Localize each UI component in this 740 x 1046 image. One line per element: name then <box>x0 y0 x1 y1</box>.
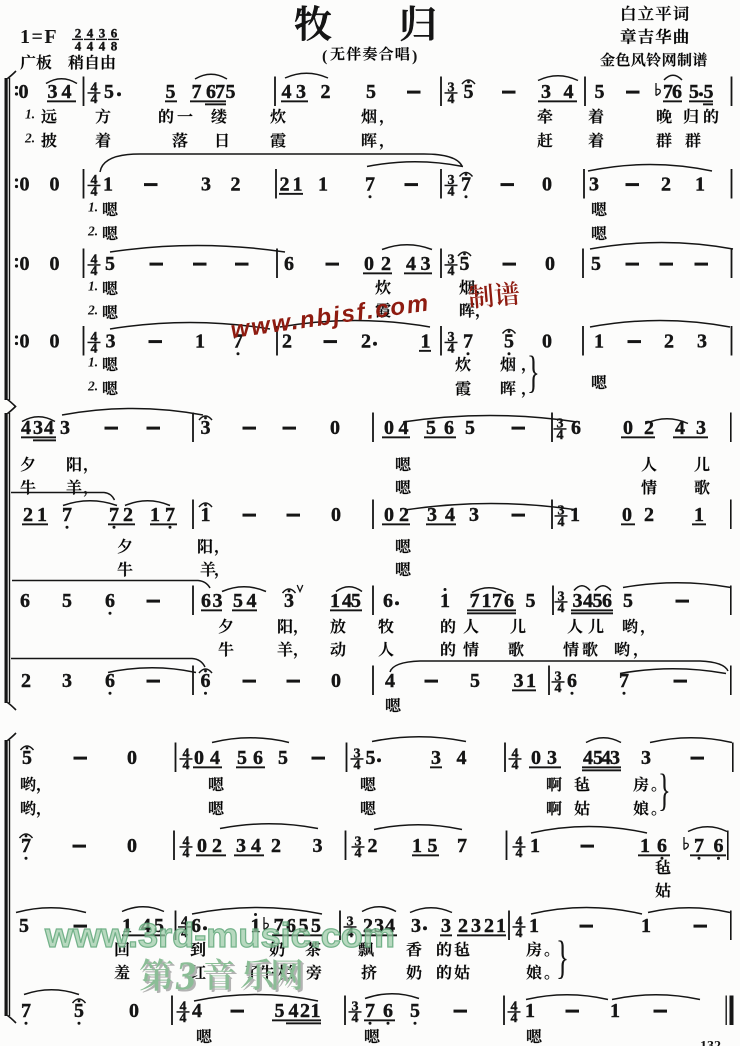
svg-text:}: } <box>556 932 569 983</box>
svg-text:1: 1 <box>201 504 211 526</box>
svg-text:7: 7 <box>365 174 375 196</box>
svg-text:1=F: 1=F <box>20 26 58 48</box>
svg-text:2: 2 <box>271 835 281 857</box>
svg-text:2: 2 <box>21 670 31 692</box>
svg-text:0: 0 <box>623 417 633 439</box>
svg-text:5: 5 <box>237 747 247 769</box>
svg-text:1.: 1. <box>25 107 35 122</box>
svg-text:0: 0 <box>384 417 394 439</box>
svg-text:3: 3 <box>589 174 599 196</box>
svg-text:4: 4 <box>516 846 523 861</box>
svg-text:4: 4 <box>555 681 562 696</box>
svg-text:3: 3 <box>573 590 583 612</box>
svg-text:4: 4 <box>91 92 98 107</box>
svg-text:4: 4 <box>583 747 593 769</box>
svg-text:5: 5 <box>366 81 376 103</box>
svg-text:3: 3 <box>175 953 196 998</box>
svg-text:7: 7 <box>165 504 175 526</box>
svg-text:1.: 1. <box>88 200 98 215</box>
svg-text:1: 1 <box>610 1000 620 1022</box>
svg-text:1: 1 <box>103 174 113 196</box>
svg-text:4: 4 <box>282 81 292 103</box>
svg-text:0: 0 <box>330 417 340 439</box>
svg-text:6: 6 <box>201 670 211 692</box>
svg-text:4: 4 <box>406 253 416 275</box>
svg-text:0: 0 <box>197 835 207 857</box>
svg-text:3: 3 <box>33 417 43 439</box>
svg-text:7: 7 <box>457 835 467 857</box>
svg-text:5: 5 <box>62 590 72 612</box>
svg-text:6: 6 <box>657 835 667 857</box>
svg-text:5: 5 <box>504 331 514 353</box>
svg-text:2: 2 <box>123 504 133 526</box>
svg-text:1: 1 <box>482 590 492 612</box>
svg-text:3: 3 <box>469 504 479 526</box>
svg-text:6: 6 <box>253 747 263 769</box>
svg-text:7: 7 <box>694 835 704 857</box>
svg-text:4: 4 <box>21 417 31 439</box>
svg-text:0: 0 <box>127 747 137 769</box>
svg-text:4: 4 <box>91 185 98 200</box>
svg-text:0: 0 <box>542 174 552 196</box>
svg-text:5: 5 <box>465 417 475 439</box>
svg-text:6: 6 <box>284 253 294 275</box>
svg-text:}: } <box>658 766 671 816</box>
svg-text:4: 4 <box>62 81 72 103</box>
svg-text:0: 0 <box>331 670 341 692</box>
svg-text:1: 1 <box>37 504 47 526</box>
svg-text:6: 6 <box>567 670 577 692</box>
svg-text:1.: 1. <box>88 279 98 294</box>
svg-text:2: 2 <box>644 504 654 526</box>
svg-text:0: 0 <box>19 81 29 103</box>
svg-text:5: 5 <box>105 253 115 275</box>
svg-text:3: 3 <box>284 590 294 612</box>
svg-text:2: 2 <box>399 504 409 526</box>
svg-text:5: 5 <box>426 417 436 439</box>
svg-text:4: 4 <box>385 670 395 692</box>
svg-text:3: 3 <box>48 81 58 103</box>
svg-text:4: 4 <box>448 92 455 107</box>
svg-text:4: 4 <box>448 185 455 200</box>
svg-text:1: 1 <box>594 331 604 353</box>
svg-text:7: 7 <box>62 504 72 526</box>
svg-text:3: 3 <box>471 915 481 937</box>
svg-text:0: 0 <box>20 253 30 275</box>
svg-text:1: 1 <box>440 590 450 612</box>
svg-text:www.3rd-music.com: www.3rd-music.com <box>44 917 395 955</box>
svg-text:2: 2 <box>23 504 33 526</box>
svg-text:3: 3 <box>441 915 451 937</box>
svg-text:4: 4 <box>251 835 261 857</box>
svg-text:4: 4 <box>192 1000 202 1022</box>
svg-text:5: 5 <box>526 590 536 612</box>
svg-text:6: 6 <box>714 835 724 857</box>
svg-text:0: 0 <box>364 253 374 275</box>
svg-text:1: 1 <box>695 174 705 196</box>
svg-text:3: 3 <box>431 747 441 769</box>
svg-text:1: 1 <box>694 504 704 526</box>
svg-text:0: 0 <box>331 504 341 526</box>
svg-text:1: 1 <box>530 835 540 857</box>
svg-text:6: 6 <box>571 417 581 439</box>
svg-text:1: 1 <box>570 504 580 526</box>
svg-text:5: 5 <box>623 590 633 612</box>
svg-text:1: 1 <box>526 670 536 692</box>
svg-text:0: 0 <box>384 504 394 526</box>
svg-text:2: 2 <box>300 1000 310 1022</box>
svg-text:1: 1 <box>293 174 303 196</box>
svg-text:0: 0 <box>542 331 552 353</box>
svg-text:1: 1 <box>529 915 539 937</box>
svg-text:3: 3 <box>106 331 116 353</box>
svg-text:7: 7 <box>461 174 471 196</box>
svg-text:4: 4 <box>564 81 574 103</box>
svg-text:5: 5 <box>233 590 243 612</box>
svg-text:4: 4 <box>180 1011 187 1026</box>
svg-text:3: 3 <box>296 81 306 103</box>
svg-text:4: 4 <box>511 1011 518 1026</box>
svg-text:4: 4 <box>558 515 565 530</box>
svg-text:3: 3 <box>201 417 211 439</box>
svg-text:2: 2 <box>321 81 331 103</box>
svg-text:5: 5 <box>19 915 29 937</box>
svg-text:132: 132 <box>700 1039 721 1046</box>
svg-text:5: 5 <box>275 1000 285 1022</box>
svg-text:1: 1 <box>311 1000 321 1022</box>
svg-text:4: 4 <box>399 417 409 439</box>
svg-text:5: 5 <box>470 670 480 692</box>
svg-text:4: 4 <box>99 39 106 54</box>
svg-text:5: 5 <box>351 590 361 612</box>
svg-text:1: 1 <box>641 915 651 937</box>
svg-text:1: 1 <box>421 331 431 353</box>
svg-text:5: 5 <box>595 81 605 103</box>
svg-text:3: 3 <box>213 590 223 612</box>
svg-text:4: 4 <box>448 342 455 357</box>
svg-text:0: 0 <box>194 747 204 769</box>
svg-text:0: 0 <box>545 253 555 275</box>
svg-text:4: 4 <box>75 39 82 54</box>
svg-text:4: 4 <box>183 846 190 861</box>
svg-text:0: 0 <box>20 331 30 353</box>
svg-text:4: 4 <box>91 264 98 279</box>
svg-text:4: 4 <box>352 1011 359 1026</box>
svg-text:8: 8 <box>111 39 118 54</box>
svg-text:2: 2 <box>368 835 378 857</box>
svg-text:5: 5 <box>460 253 470 275</box>
svg-text:2: 2 <box>484 915 494 937</box>
svg-text:1: 1 <box>640 835 650 857</box>
svg-text:0: 0 <box>50 253 60 275</box>
svg-text:1: 1 <box>318 174 328 196</box>
svg-text:7: 7 <box>109 504 119 526</box>
svg-text:5: 5 <box>104 81 114 103</box>
svg-text:5: 5 <box>226 81 236 103</box>
svg-text:5: 5 <box>464 81 474 103</box>
svg-text:0: 0 <box>531 747 541 769</box>
svg-text:5: 5 <box>410 1000 420 1022</box>
svg-text:2: 2 <box>661 174 671 196</box>
svg-text:4: 4 <box>445 504 455 526</box>
svg-text:2: 2 <box>458 915 468 937</box>
svg-text:5: 5 <box>166 81 176 103</box>
svg-text:6: 6 <box>602 590 612 612</box>
svg-text:3: 3 <box>541 81 551 103</box>
svg-text:7: 7 <box>215 81 225 103</box>
svg-text:0: 0 <box>622 504 632 526</box>
svg-text:2: 2 <box>361 331 371 353</box>
svg-text:4: 4 <box>516 926 523 941</box>
svg-text:5: 5 <box>74 1000 84 1022</box>
svg-text:4: 4 <box>210 747 220 769</box>
svg-text:6: 6 <box>105 590 115 612</box>
svg-text:6: 6 <box>672 81 682 103</box>
svg-text:3: 3 <box>411 915 421 937</box>
svg-text:3: 3 <box>201 174 211 196</box>
svg-text:3: 3 <box>547 747 557 769</box>
svg-text:3: 3 <box>60 417 70 439</box>
svg-text:7: 7 <box>21 1000 31 1022</box>
svg-text:2.: 2. <box>87 379 98 394</box>
svg-text:3: 3 <box>313 835 323 857</box>
svg-text:7: 7 <box>463 331 473 353</box>
svg-text:5: 5 <box>591 253 601 275</box>
svg-text:6: 6 <box>504 590 514 612</box>
svg-text:6: 6 <box>444 417 454 439</box>
svg-text:4: 4 <box>87 39 94 54</box>
svg-text:3: 3 <box>514 670 524 692</box>
svg-text:1: 1 <box>150 504 160 526</box>
svg-text:4: 4 <box>354 758 361 773</box>
svg-text:3: 3 <box>421 253 431 275</box>
svg-text:3: 3 <box>62 670 72 692</box>
svg-text:2: 2 <box>381 253 391 275</box>
svg-text:1: 1 <box>330 590 340 612</box>
svg-text:1: 1 <box>496 915 506 937</box>
svg-text:4: 4 <box>457 747 467 769</box>
svg-text:7: 7 <box>365 1000 375 1022</box>
svg-text:2: 2 <box>231 174 241 196</box>
svg-text:4: 4 <box>355 846 362 861</box>
svg-text:4: 4 <box>557 428 564 443</box>
svg-text:5: 5 <box>428 835 438 857</box>
svg-text:7: 7 <box>492 590 502 612</box>
svg-text:(: ( <box>322 48 327 65</box>
svg-text:5: 5 <box>704 81 714 103</box>
svg-text:5: 5 <box>689 81 699 103</box>
svg-text:5: 5 <box>366 747 376 769</box>
svg-text:4: 4 <box>558 601 565 616</box>
svg-text:3: 3 <box>641 747 651 769</box>
svg-text:0: 0 <box>50 331 60 353</box>
svg-text:7: 7 <box>470 590 480 612</box>
svg-text:6: 6 <box>383 1000 393 1022</box>
svg-text:3: 3 <box>610 747 620 769</box>
svg-text:5: 5 <box>593 590 603 612</box>
svg-text:2: 2 <box>664 331 674 353</box>
svg-text:0: 0 <box>127 835 137 857</box>
svg-text:4: 4 <box>583 590 593 612</box>
svg-text:3: 3 <box>236 835 246 857</box>
svg-text:1: 1 <box>525 1000 535 1022</box>
svg-text:2.: 2. <box>24 131 35 146</box>
svg-text:2.: 2. <box>87 303 98 318</box>
svg-text:}: } <box>527 348 540 398</box>
svg-text:2: 2 <box>280 174 290 196</box>
svg-text:4: 4 <box>289 1000 299 1022</box>
svg-text:6: 6 <box>201 590 211 612</box>
svg-text:0: 0 <box>50 174 60 196</box>
svg-text:5: 5 <box>278 747 288 769</box>
svg-text:3: 3 <box>697 331 707 353</box>
svg-text:4: 4 <box>247 590 257 612</box>
svg-text:7: 7 <box>192 81 202 103</box>
svg-text:4: 4 <box>183 758 190 773</box>
svg-text:6: 6 <box>105 670 115 692</box>
svg-text:): ) <box>412 48 417 65</box>
svg-text:2.: 2. <box>87 224 98 239</box>
svg-text:3: 3 <box>696 417 706 439</box>
svg-text:4: 4 <box>448 264 455 279</box>
svg-text:2: 2 <box>212 835 222 857</box>
svg-text:1: 1 <box>412 835 422 857</box>
svg-text:4: 4 <box>512 758 519 773</box>
svg-text:6: 6 <box>383 590 393 612</box>
svg-text:0: 0 <box>129 1000 139 1022</box>
svg-text:1: 1 <box>195 331 205 353</box>
svg-text:6: 6 <box>20 590 30 612</box>
svg-text:1.: 1. <box>88 355 98 370</box>
svg-text:0: 0 <box>20 174 30 196</box>
svg-text:7: 7 <box>21 835 31 857</box>
svg-text:5: 5 <box>22 747 32 769</box>
